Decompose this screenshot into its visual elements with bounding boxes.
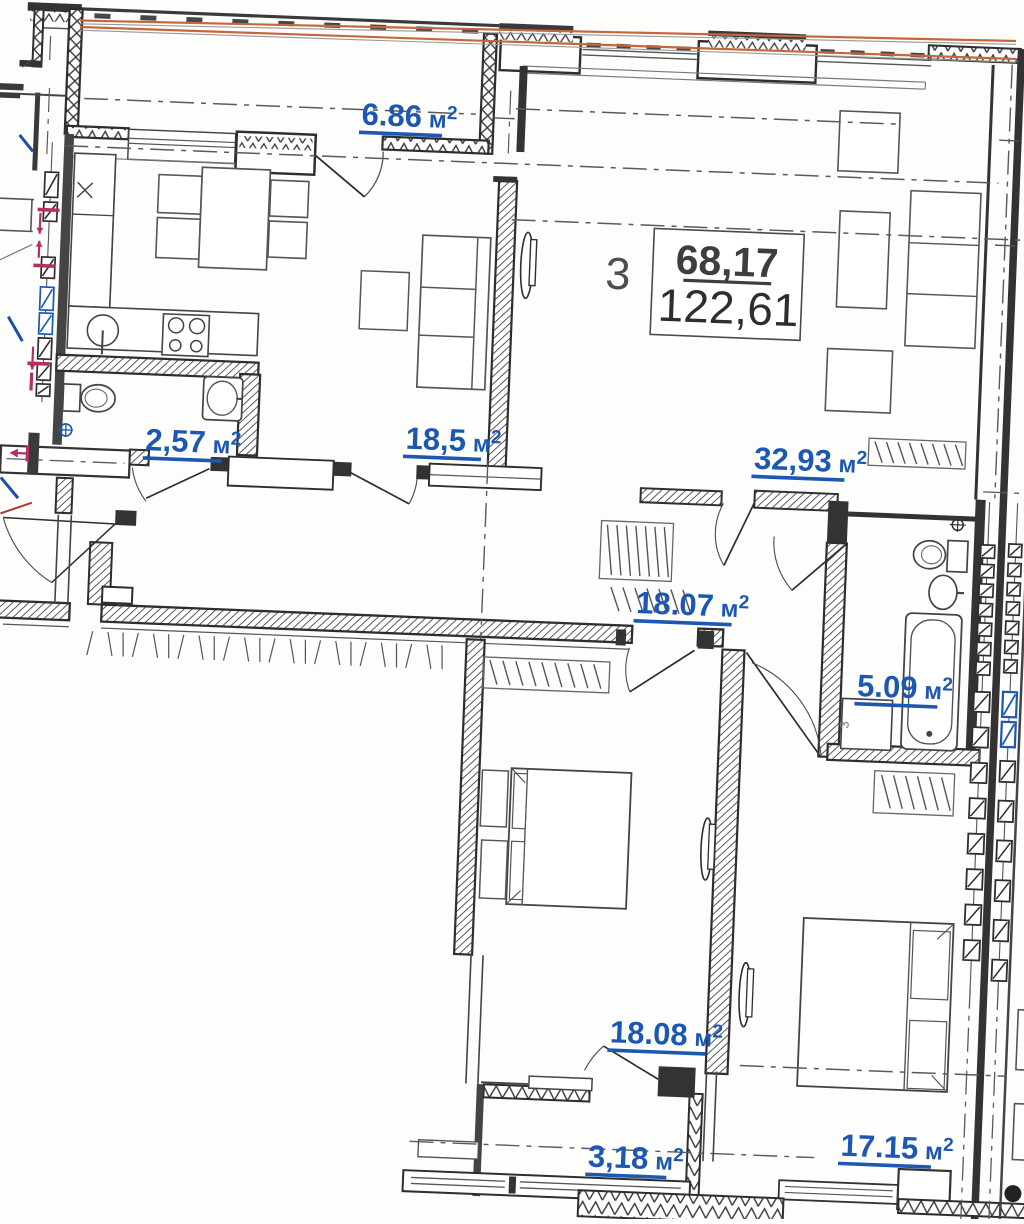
svg-text:3: 3	[605, 248, 632, 300]
svg-text:3: 3	[836, 721, 851, 729]
svg-text:68,17: 68,17	[675, 236, 779, 286]
svg-text:122,61: 122,61	[657, 279, 800, 337]
